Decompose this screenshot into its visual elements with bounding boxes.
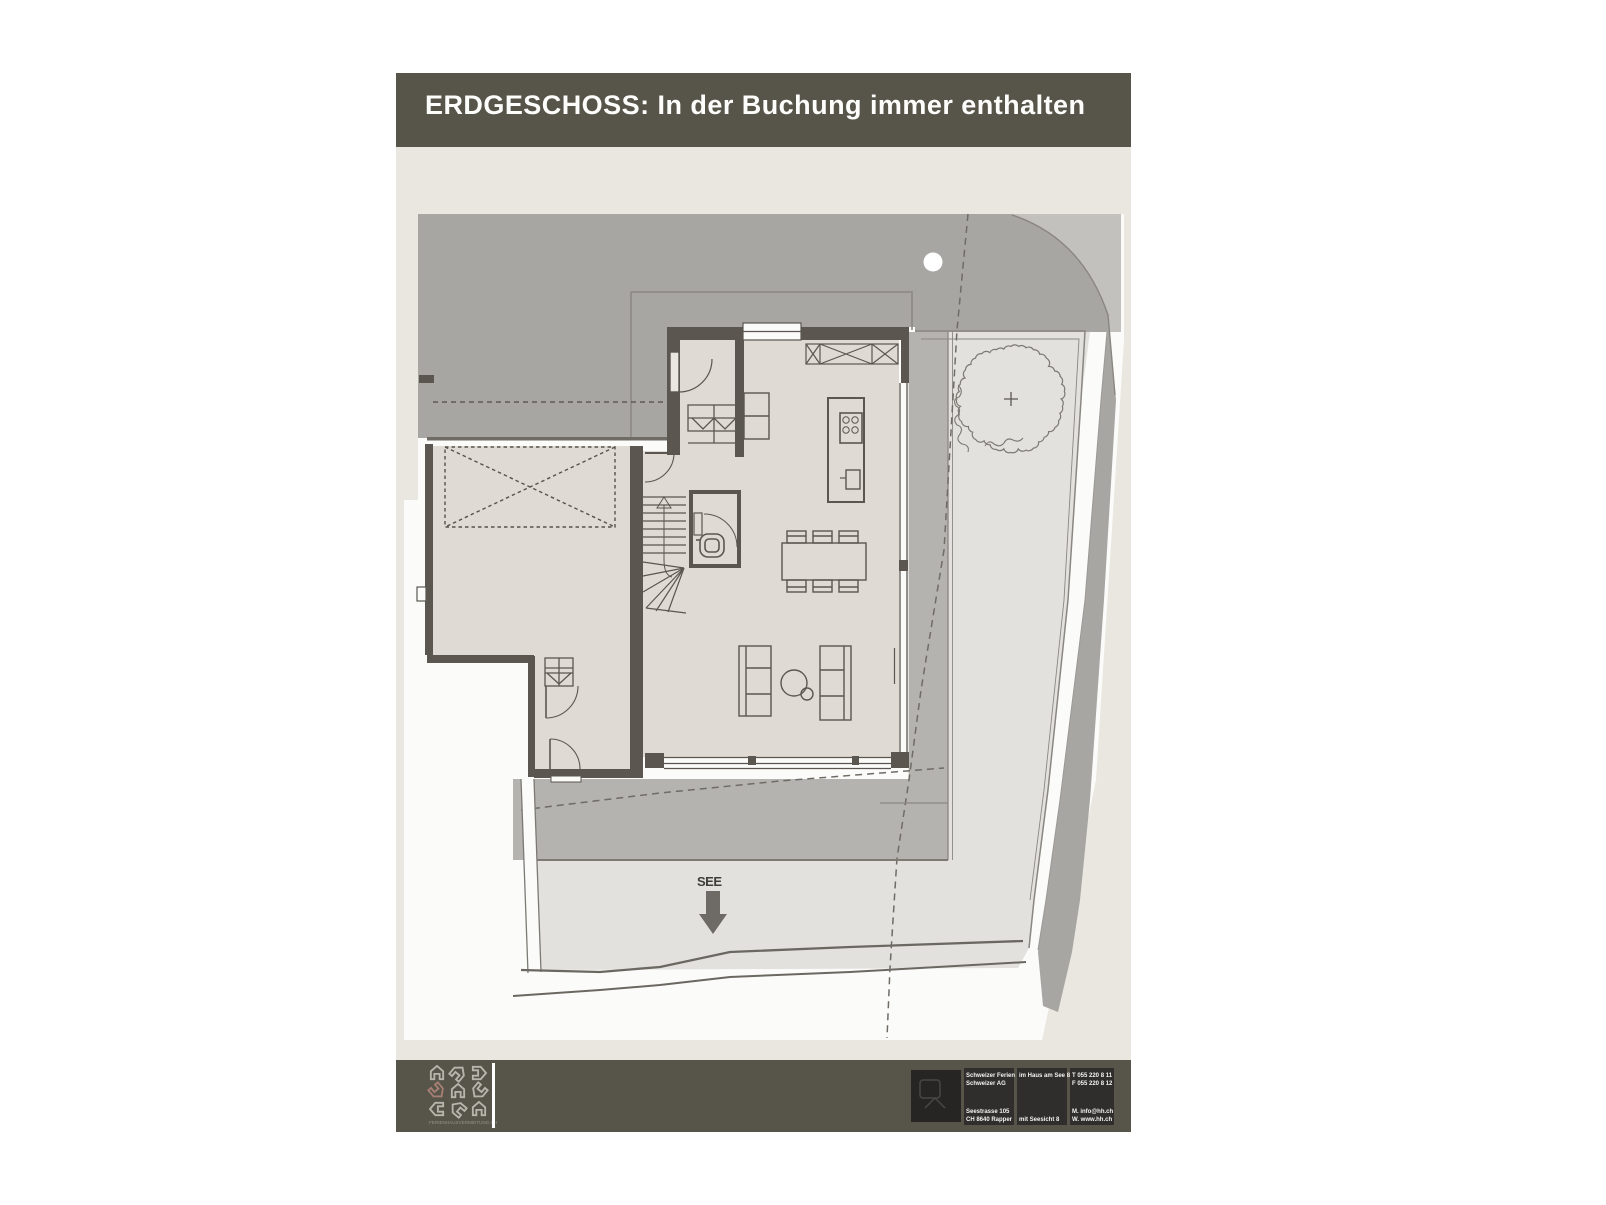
svg-text:M. info@hh.ch: M. info@hh.ch bbox=[1072, 1109, 1114, 1115]
svg-text:CH 8640 Rapper: CH 8640 Rapper bbox=[966, 1117, 1013, 1123]
svg-text:ERDGESCHOSS: In der Buchung im: ERDGESCHOSS: In der Buchung immer enthal… bbox=[425, 90, 1085, 120]
svg-text:Schweizer AG: Schweizer AG bbox=[966, 1081, 1006, 1087]
svg-text:mit Seesicht 8: mit Seesicht 8 bbox=[1019, 1117, 1060, 1123]
svg-text:Seestrasse 105: Seestrasse 105 bbox=[966, 1109, 1010, 1115]
svg-text:F 055 220 8 12: F 055 220 8 12 bbox=[1072, 1081, 1113, 1087]
svg-text:SEE: SEE bbox=[697, 874, 722, 889]
svg-text:Schweizer Ferien: Schweizer Ferien bbox=[966, 1073, 1015, 1079]
svg-text:W. www.hh.ch: W. www.hh.ch bbox=[1072, 1117, 1112, 1123]
svg-text:FERIENHAUSVERMIETUNG.CH: FERIENHAUSVERMIETUNG.CH bbox=[429, 1120, 497, 1125]
svg-text:T 055 220 8 11: T 055 220 8 11 bbox=[1072, 1073, 1113, 1079]
svg-text:im Haus am See 8: im Haus am See 8 bbox=[1019, 1073, 1071, 1079]
